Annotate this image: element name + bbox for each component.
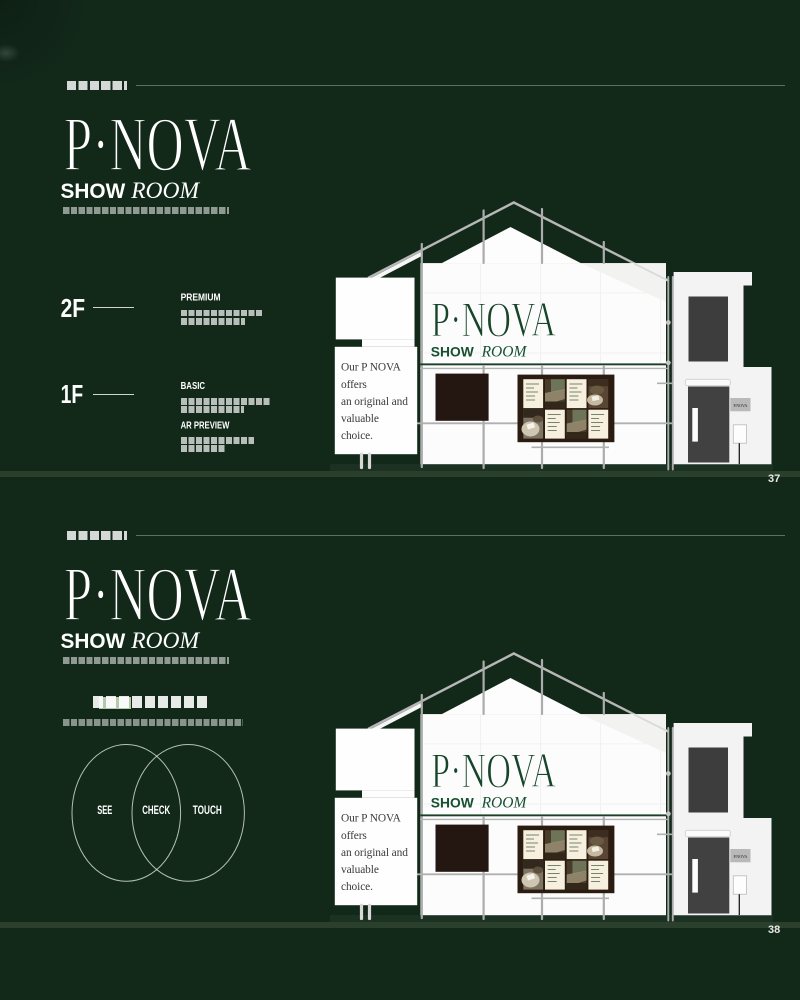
svg-text:AR PREVIEW: AR PREVIEW xyxy=(181,421,230,432)
svg-text:choice.: choice. xyxy=(341,430,373,442)
svg-text:PREMIUM: PREMIUM xyxy=(181,293,221,304)
svg-text:offers: offers xyxy=(341,379,367,391)
svg-text:Our P NOVA: Our P NOVA xyxy=(341,813,402,825)
svg-text:1F: 1F xyxy=(61,379,84,409)
svg-text:CHECK: CHECK xyxy=(142,805,170,817)
svg-text:valuable: valuable xyxy=(341,864,379,876)
svg-text:SHOW ROOM: SHOW ROOM xyxy=(431,344,528,361)
svg-text:2F: 2F xyxy=(61,293,86,323)
svg-text:an original and: an original and xyxy=(341,847,408,859)
svg-text:SHOW ROOM: SHOW ROOM xyxy=(431,795,528,812)
svg-text:P·NOVA: P·NOVA xyxy=(64,107,252,177)
svg-text:SEE: SEE xyxy=(97,805,112,817)
svg-text:TOUCH: TOUCH xyxy=(193,805,222,817)
svg-text:P·NOVA: P·NOVA xyxy=(431,742,556,798)
svg-text:offers: offers xyxy=(341,830,367,842)
svg-text:P.NOVA: P.NOVA xyxy=(733,854,747,859)
svg-text:valuable: valuable xyxy=(341,413,379,425)
svg-text:Our P NOVA: Our P NOVA xyxy=(341,362,402,374)
svg-text:P·NOVA: P·NOVA xyxy=(431,291,556,347)
svg-text:P.NOVA: P.NOVA xyxy=(733,403,747,408)
svg-text:choice.: choice. xyxy=(341,881,373,893)
svg-text:P·NOVA: P·NOVA xyxy=(64,557,252,627)
svg-text:an original and: an original and xyxy=(341,396,408,408)
svg-text:BASIC: BASIC xyxy=(181,381,206,392)
